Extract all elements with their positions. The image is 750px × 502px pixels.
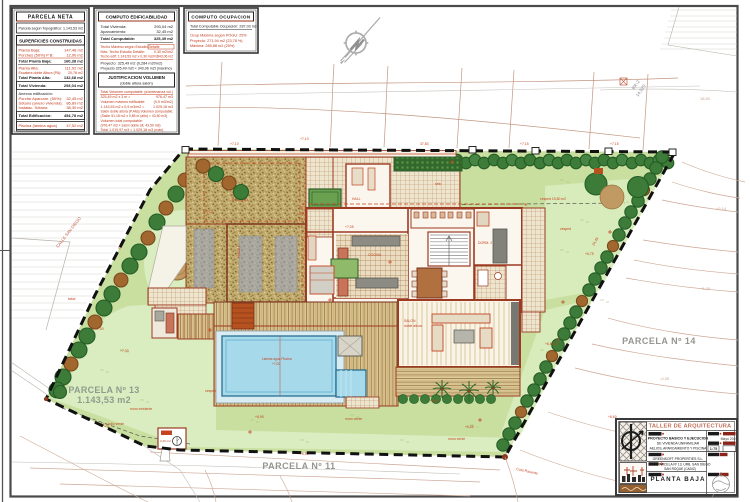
svg-text:325,49 m2: 325,49 m2 [154, 36, 174, 41]
svg-text:Aparcamiento:: Aparcamiento: [101, 29, 127, 34]
svg-text:COCINA: COCINA [368, 253, 382, 257]
svg-text:Instalac. Sótano:: Instalac. Sótano: [19, 105, 49, 110]
svg-text:tubo verde: tubo verde [108, 422, 124, 426]
svg-text:(0,9 m3/m2): (0,9 m3/m2) [154, 100, 173, 104]
svg-text:+7,10: +7,10 [300, 137, 309, 141]
svg-text:Parcela según Topográfico:: Parcela según Topográfico: [19, 27, 63, 31]
svg-text:1.143,53 m2: 1.143,53 m2 [77, 395, 131, 405]
svg-text:Total Computable:: Total Computable: [101, 36, 136, 41]
svg-text:Volumen total computable:: Volumen total computable: [101, 119, 143, 123]
svg-text:Máx. Techo Estudio Detalle:: Máx. Techo Estudio Detalle: [101, 50, 145, 54]
svg-text:Porches (50%) P B:: Porches (50%) P B: [19, 53, 54, 58]
svg-text:Proyecto 325,49 m2t < 343,0: Proyecto 325,49 m2t < 343,06 m2t (máximo… [101, 66, 172, 70]
svg-text:cesped: cesped [560, 227, 571, 231]
svg-text:-0,35: -0,35 [660, 376, 670, 381]
svg-text:+6,95: +6,95 [255, 415, 264, 419]
svg-text:SALON: SALON [404, 319, 416, 323]
svg-text:18,50: 18,50 [700, 96, 711, 101]
svg-text:454,78 m2: 454,78 m2 [64, 113, 84, 118]
svg-text:Total Planta Alta:: Total Planta Alta: [19, 75, 51, 80]
svg-text:Techo edif: 1.143,53 m2 x 0,30: Techo edif: 1.143,53 m2 x 0,30 m2/m2 [101, 54, 159, 58]
svg-text:32,45 m2: 32,45 m2 [156, 29, 173, 34]
svg-text:(976,47 m3 + salón doble alt.: (976,47 m3 + salón doble alt. 43,50 m3) [101, 123, 161, 127]
svg-text:Ocup Máxima según POGU: 25%: Ocup Máxima según POGU: 25% [190, 34, 247, 38]
svg-text:+7,00: +7,00 [120, 349, 129, 353]
svg-text:PARCELA Nº 13: PARCELA Nº 13 [68, 385, 139, 395]
svg-text:SAN ROQUE (CADIZ): SAN ROQUE (CADIZ) [664, 467, 696, 471]
svg-text:Planta Alta:: Planta Alta: [19, 66, 39, 71]
svg-text:Volumen máximo edificable:: Volumen máximo edificable: [101, 100, 146, 104]
svg-text:1.029,18 m3: 1.029,18 m3 [153, 105, 173, 109]
svg-text:1.143,53 m2: 1.143,53 m2 [63, 27, 83, 31]
svg-text:+6,80: +6,80 [545, 342, 554, 346]
svg-text:(s/ordenanza vol.): (s/ordenanza vol.) [144, 90, 173, 94]
svg-text:Total Vivienda:: Total Vivienda: [19, 83, 47, 88]
svg-text:PROYECTO BASICO Y EJECUCION: PROYECTO BASICO Y EJECUCION [648, 437, 709, 441]
svg-text:+6,85: +6,85 [465, 425, 474, 429]
svg-text:DORM. 2: DORM. 2 [478, 241, 492, 245]
svg-text:(doble altura salón): (doble altura salón) [120, 82, 153, 86]
svg-text:+7,00: +7,00 [95, 327, 104, 331]
svg-text:12,90 m2: 12,90 m2 [66, 53, 83, 58]
svg-text:111,92 m2: 111,92 m2 [65, 66, 84, 71]
svg-text:GREENSOFT PROPERTIES S.L.: GREENSOFT PROPERTIES S.L. [653, 457, 704, 461]
svg-text:muro verde: muro verde [345, 417, 362, 421]
svg-text:muro verde: muro verde [448, 437, 465, 441]
svg-text:PLAZA 1: PLAZA 1 [237, 245, 241, 258]
svg-text:293,04 m2: 293,04 m2 [64, 83, 84, 88]
svg-text:1.143,53 m2 x 0,9 m3/m2 =: 1.143,53 m2 x 0,9 m3/m2 = [101, 105, 145, 109]
svg-text:Total Volumen computable: Total Volumen computable [101, 90, 143, 94]
svg-text:Máxima: 285,88 m2 (2: Máxima: 285,88 m2 (25%) [190, 44, 235, 48]
svg-text:325,49 m2 x 3 m =: 325,49 m2 x 3 m = [101, 95, 131, 99]
svg-text:Total Planta Baja:: Total Planta Baja: [19, 59, 52, 64]
svg-text:PARCELA Nº 14: PARCELA Nº 14 [622, 336, 696, 346]
svg-text:Total 1.019,97 m3 < 1.029,1: Total 1.019,97 m3 < 1.029,18 m3 (máx) [101, 128, 164, 132]
svg-text:Salón doble altura (P.Alta) V: Salón doble altura (P.Alta) Volumen comp… [101, 110, 174, 114]
svg-text:37,83: 37,83 [420, 142, 429, 146]
svg-text:2,20 m2: 2,20 m2 [160, 439, 171, 443]
svg-text:+2,14: +2,14 [716, 206, 727, 211]
svg-text:1:75: 1:75 [710, 447, 718, 451]
svg-text:HALL: HALL [352, 197, 361, 201]
svg-text:+6,90: +6,90 [430, 399, 439, 403]
svg-text:PARCELA Nº 11: PARCELA Nº 11 [262, 461, 335, 471]
svg-text:38,30 m2: 38,30 m2 [66, 105, 83, 110]
svg-text:SUPERFICIES CONSTRUIDAS: SUPERFICIES CONSTRUIDAS [19, 39, 82, 44]
svg-text:Techo Máximo según Estudio Det: Techo Máximo según Estudio Detalle [101, 45, 160, 49]
svg-text:132,68 m2: 132,68 m2 [64, 75, 84, 80]
svg-text:+6,75: +6,75 [585, 252, 594, 256]
svg-text:Mayo 2019: Mayo 2019 [721, 437, 738, 441]
svg-text:160,38 m2: 160,38 m2 [64, 59, 84, 64]
svg-text:seto: seto [435, 182, 442, 186]
svg-text:976,47 m3: 976,47 m3 [156, 95, 173, 99]
svg-text:Proyecto: 325,49 m2 (0,284 m2: Proyecto: 325,49 m2 (0,284 m2t/m2) [101, 62, 164, 66]
svg-text:+7,00: +7,00 [272, 362, 280, 366]
svg-text:+7,05: +7,05 [345, 225, 354, 229]
svg-text:343,06 m2: 343,06 m2 [157, 54, 173, 58]
svg-text:Total Computable Ocupación: 28: Total Computable Ocupación: 287,03 m2 [190, 25, 257, 29]
svg-text:+7,15: +7,15 [520, 142, 529, 146]
svg-text:PARCELA NETA: PARCELA NETA [28, 15, 73, 21]
svg-text:COMPUTO EDIFICABILIDAD: COMPUTO EDIFICABILIDAD [106, 15, 168, 20]
svg-text:DE VIVIENDA UNIFAMILIAR: DE VIVIENDA UNIFAMILIAR [657, 442, 700, 446]
svg-text:doble altura: doble altura [404, 324, 422, 328]
svg-text:Piscina (lámina agua): Piscina (lámina agua) [19, 123, 58, 128]
svg-text:AELIOS, APARCAMIENTO Y PISCINA: AELIOS, APARCAMIENTO Y PISCINA [650, 446, 708, 450]
svg-text:(Salón 51,18 m2 x 0,85 m (alto: (Salón 51,18 m2 x 0,85 m (alto) = 43,50 … [101, 114, 168, 118]
svg-text:Proyecto: 271,94 m2 (23,78 %): Proyecto: 271,94 m2 (23,78 %) [190, 39, 243, 43]
svg-text:Lamina agua Piscina: Lamina agua Piscina [262, 357, 292, 361]
svg-text:+1,20: +1,20 [700, 286, 711, 291]
svg-text:cesped: cesped [205, 389, 216, 393]
svg-text:0,30 m2/m2: 0,30 m2/m2 [154, 50, 173, 54]
svg-text:COMPUTO OCUPACION: COMPUTO OCUPACION [191, 15, 250, 20]
svg-text:+7,00: +7,00 [205, 210, 213, 214]
svg-text:JUSTIFICACION VOLUMEN: JUSTIFICACION VOLUMEN [108, 75, 165, 80]
svg-text:muro existente: muro existente [130, 407, 152, 411]
svg-text:+7,10: +7,10 [230, 142, 239, 146]
svg-text:Total Edificación:: Total Edificación: [19, 113, 52, 118]
svg-text:+7,15: +7,15 [610, 142, 619, 146]
svg-text:TALLER DE ARQUITECTURA: TALLER DE ARQUITECTURA [649, 424, 732, 430]
svg-text:PLANTA BAJA: PLANTA BAJA [650, 476, 705, 483]
svg-text:47,52 m2: 47,52 m2 [66, 123, 83, 128]
svg-text:talud: talud [68, 297, 75, 301]
svg-text:cesped 15,80 m2: cesped 15,80 m2 [540, 197, 566, 201]
